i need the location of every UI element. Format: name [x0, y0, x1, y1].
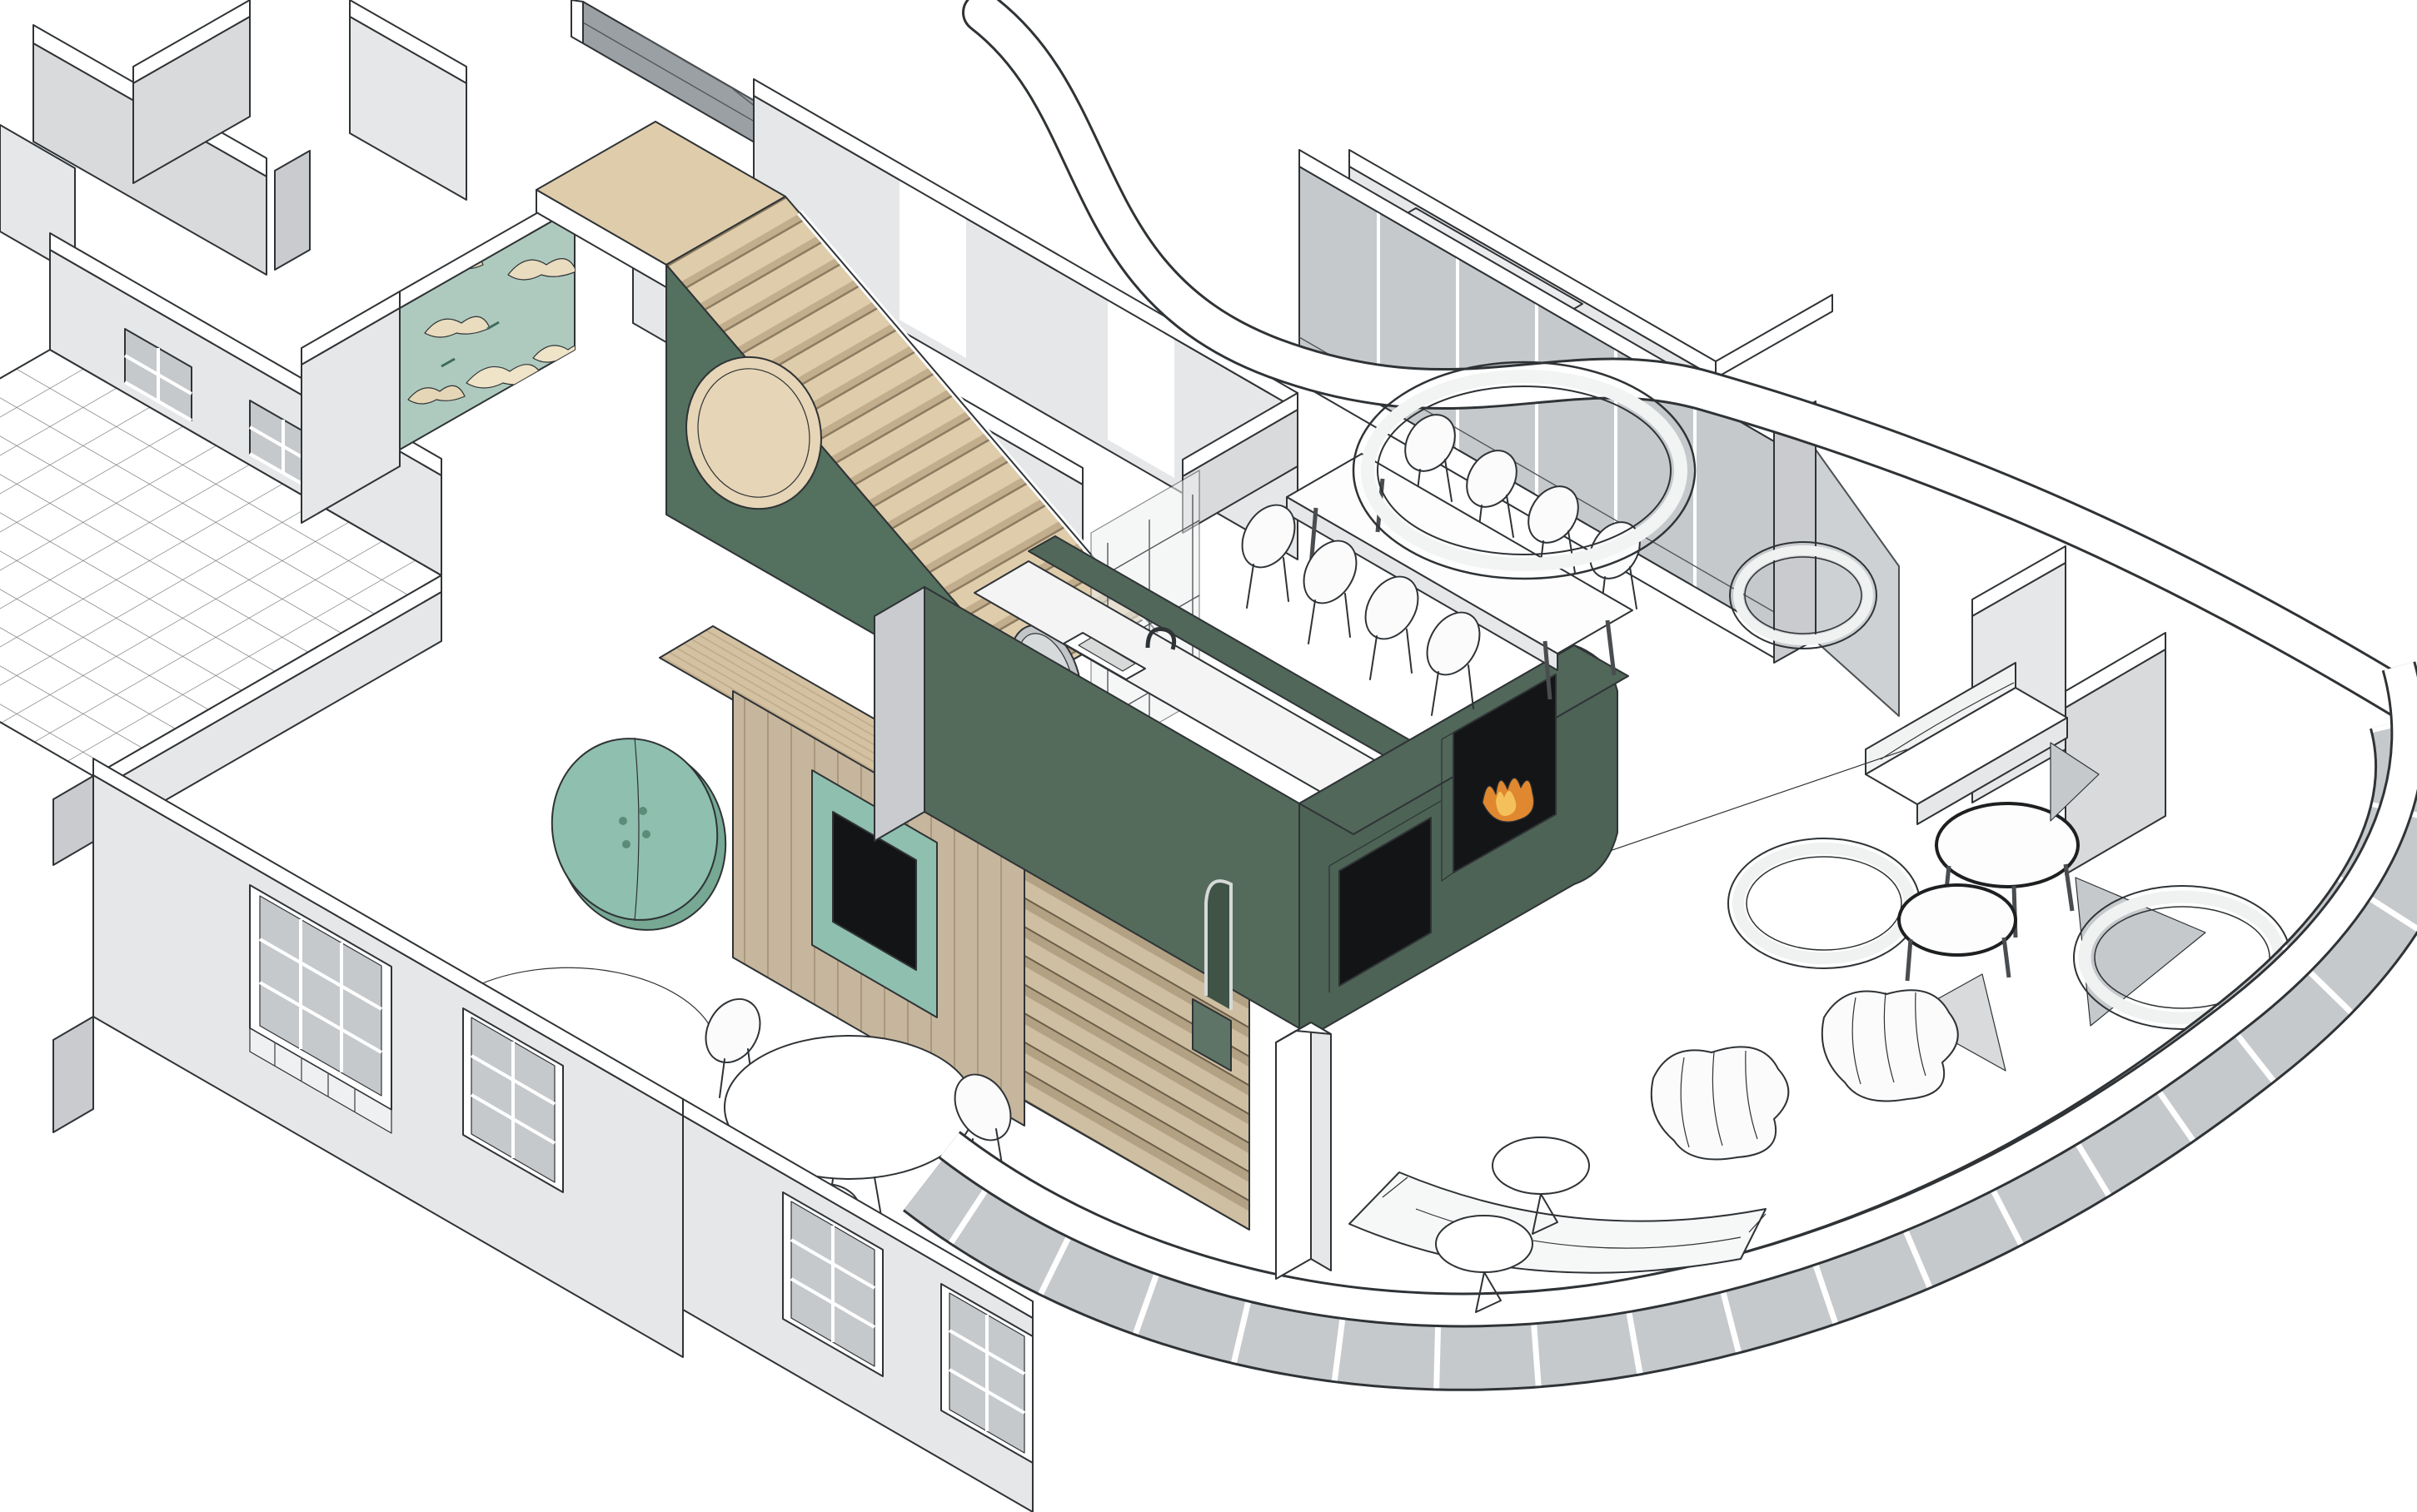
axonometric-scene — [0, 0, 2417, 1512]
white-column — [1276, 1022, 1331, 1279]
arch-niche — [1206, 881, 1231, 1010]
architectural-rendering — [0, 0, 2417, 1512]
